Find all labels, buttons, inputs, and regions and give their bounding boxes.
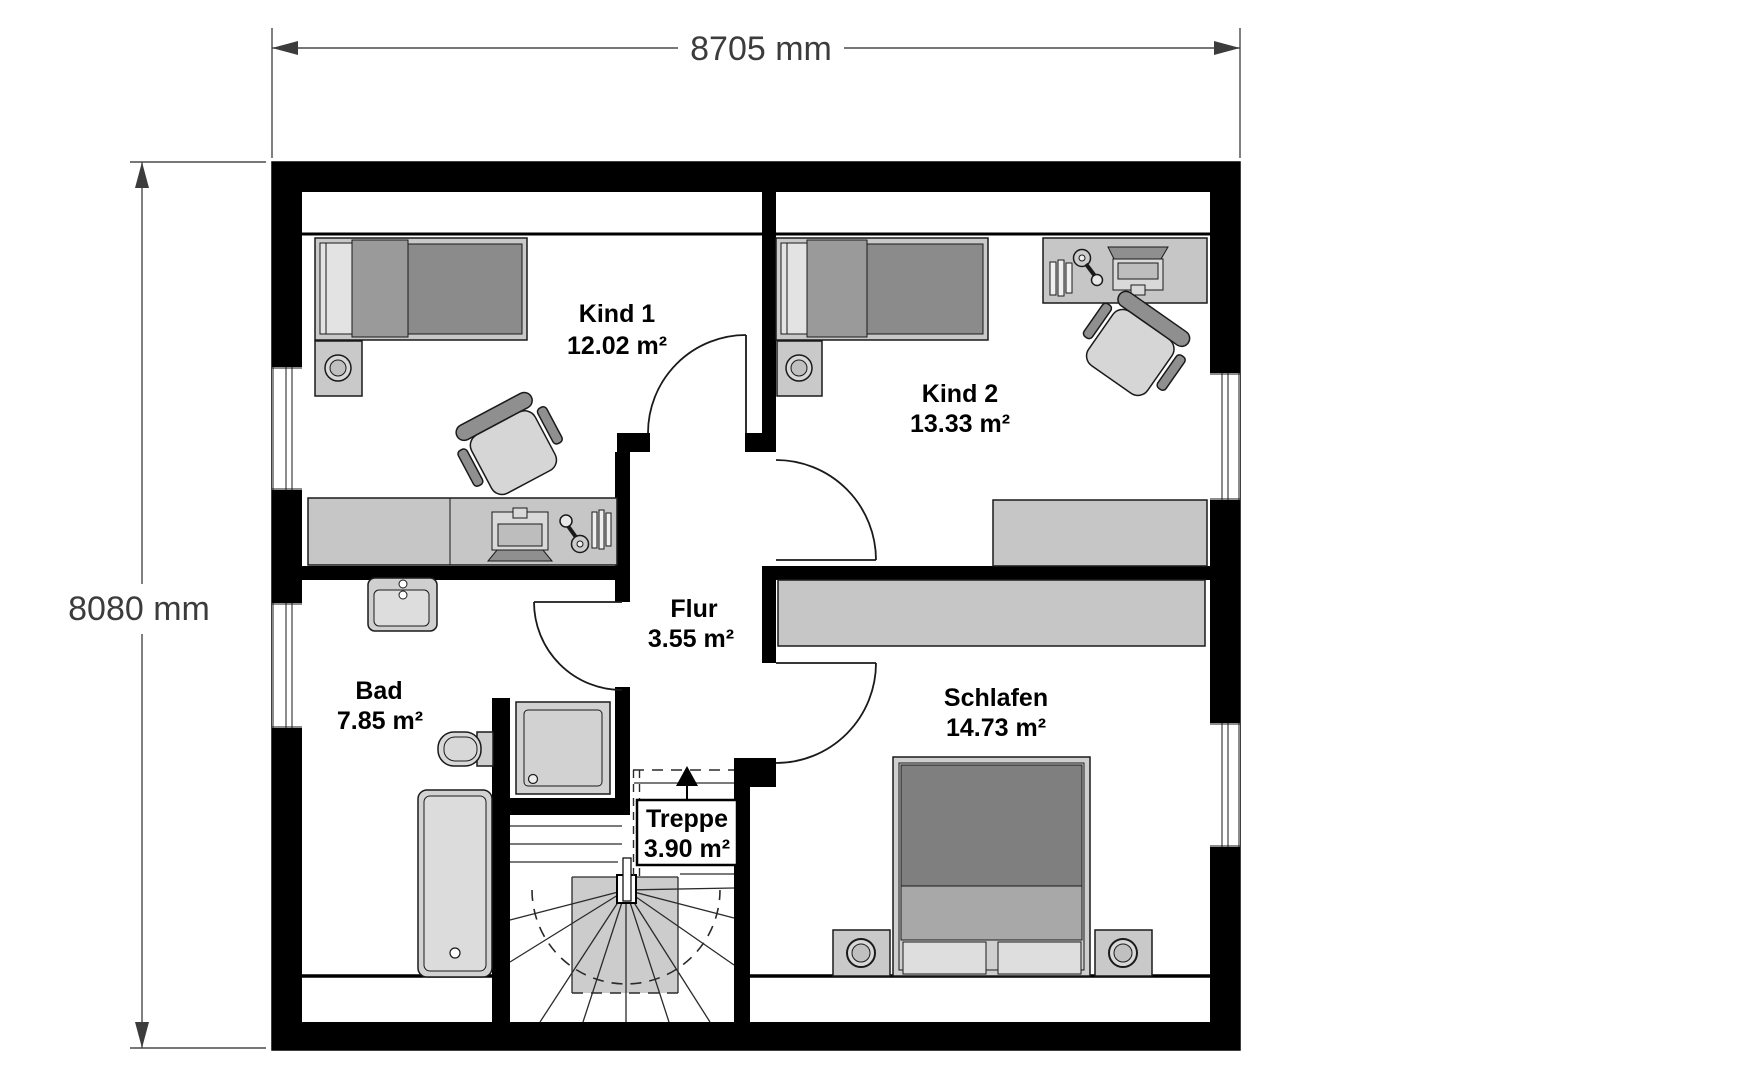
toilet-icon <box>438 732 493 766</box>
dimension-left: 8080 mm <box>68 162 266 1048</box>
wardrobe-icon <box>993 500 1207 566</box>
room-area: 12.02 m² <box>567 332 667 360</box>
nightstand-icon <box>315 341 362 396</box>
dimension-width-label: 8705 mm <box>690 30 832 68</box>
arrow-up-icon <box>135 162 149 188</box>
room-name: Flur <box>670 595 717 623</box>
room-name: Bad <box>355 677 402 705</box>
floor-plan-drawing: Kind 1 12.02 m² Kind 2 13.33 m² Flur 3.5… <box>0 0 1741 1080</box>
nightstand-icon <box>1095 930 1152 976</box>
nightstand-icon <box>777 341 822 396</box>
arrow-right-icon <box>1214 41 1240 55</box>
room-label-treppe: Treppe 3.90 m² <box>637 800 737 865</box>
arrow-down-icon <box>135 1022 149 1048</box>
room-name: Schlafen <box>944 684 1048 712</box>
room-area: 3.90 m² <box>644 835 730 863</box>
dimension-height-label: 8080 mm <box>68 590 210 628</box>
wardrobe-icon <box>778 580 1205 646</box>
room-area: 3.55 m² <box>648 625 734 653</box>
room-area: 14.73 m² <box>946 714 1046 742</box>
books-icon <box>1050 260 1072 296</box>
monitor-icon <box>1108 247 1168 295</box>
sink-icon <box>368 578 437 631</box>
room-name: Kind 2 <box>922 380 998 408</box>
dimension-top: 8705 mm <box>272 28 1240 158</box>
bed-icon <box>776 238 988 340</box>
bathtub-icon <box>418 790 492 977</box>
room-name: Treppe <box>646 805 728 833</box>
double-bed-icon <box>893 757 1090 976</box>
floor-plan: Kind 1 12.02 m² Kind 2 13.33 m² Flur 3.5… <box>0 0 1741 1080</box>
arrow-left-icon <box>272 41 298 55</box>
room-name: Kind 1 <box>579 300 655 328</box>
bed-icon <box>315 238 527 340</box>
laptop-icon <box>488 508 552 561</box>
nightstand-icon <box>833 930 890 976</box>
books-icon <box>592 510 611 549</box>
room-area: 13.33 m² <box>910 410 1010 438</box>
room-area: 7.85 m² <box>337 707 423 735</box>
shower-icon <box>516 702 610 794</box>
